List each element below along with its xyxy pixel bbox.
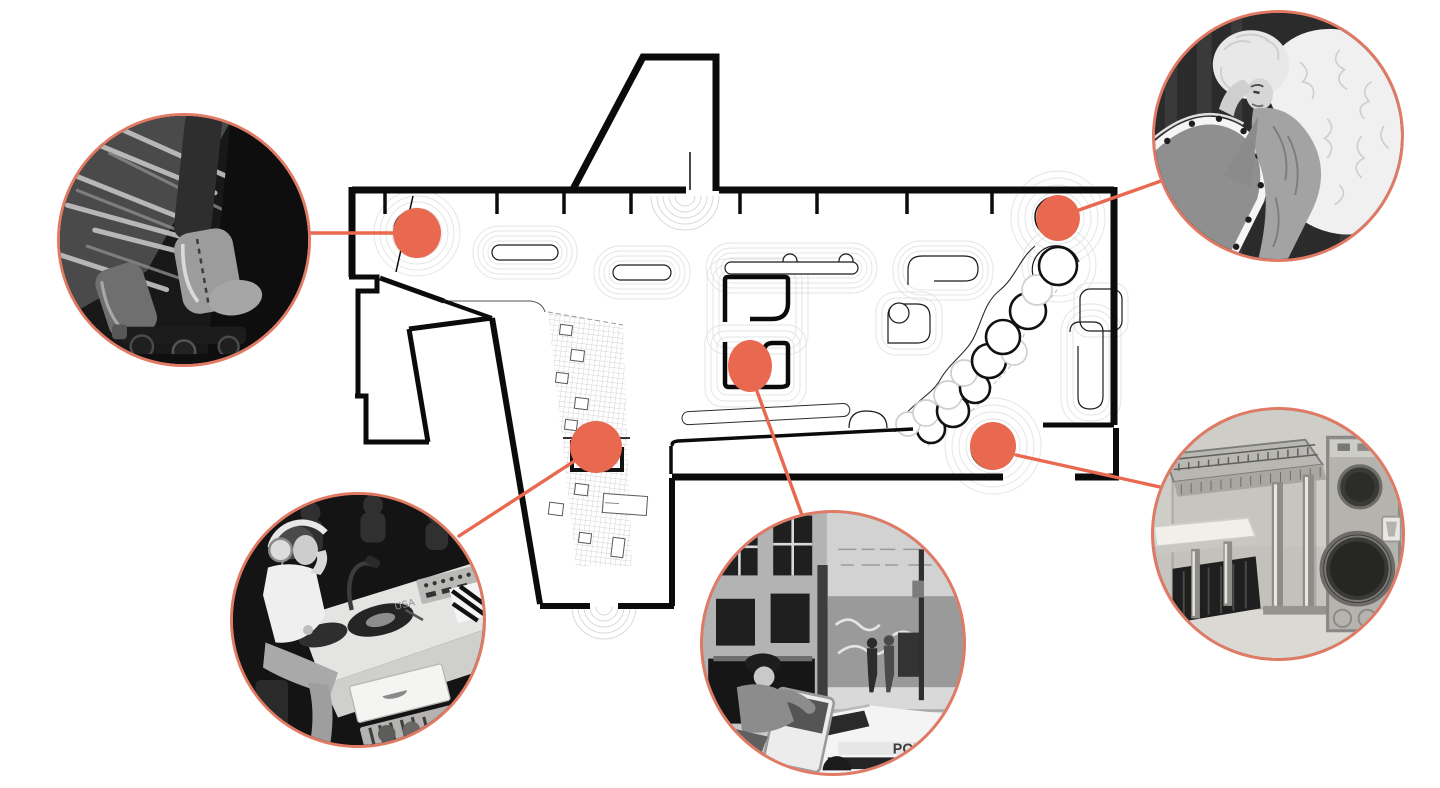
callout-roller-skates[interactable] (57, 113, 311, 367)
disco-floorplan-infographic: USA (0, 0, 1440, 788)
callout-transparent-piano[interactable] (1151, 407, 1405, 661)
hotspot-dj[interactable] (570, 421, 622, 473)
callout-dj-booth[interactable]: USA (230, 492, 486, 748)
hotspot-divine[interactable] (1036, 195, 1080, 241)
callout-drag-performer[interactable] (1152, 10, 1404, 262)
hotspot-piano[interactable] (970, 422, 1016, 470)
transparent-piano-photo (1154, 410, 1402, 658)
street-police-photo: POLI (703, 513, 963, 773)
drag-performer-photo (1155, 13, 1401, 259)
callout-street-police[interactable]: POLI (700, 510, 966, 776)
dj-booth-photo: USA (233, 495, 483, 745)
connector-piano (1016, 455, 1160, 487)
cloud-sofa (895, 246, 1077, 446)
connector-police (750, 372, 802, 515)
hotspot-skates[interactable] (393, 208, 441, 258)
hotspot-police[interactable] (728, 340, 772, 392)
roller-skates-photo (60, 116, 308, 364)
